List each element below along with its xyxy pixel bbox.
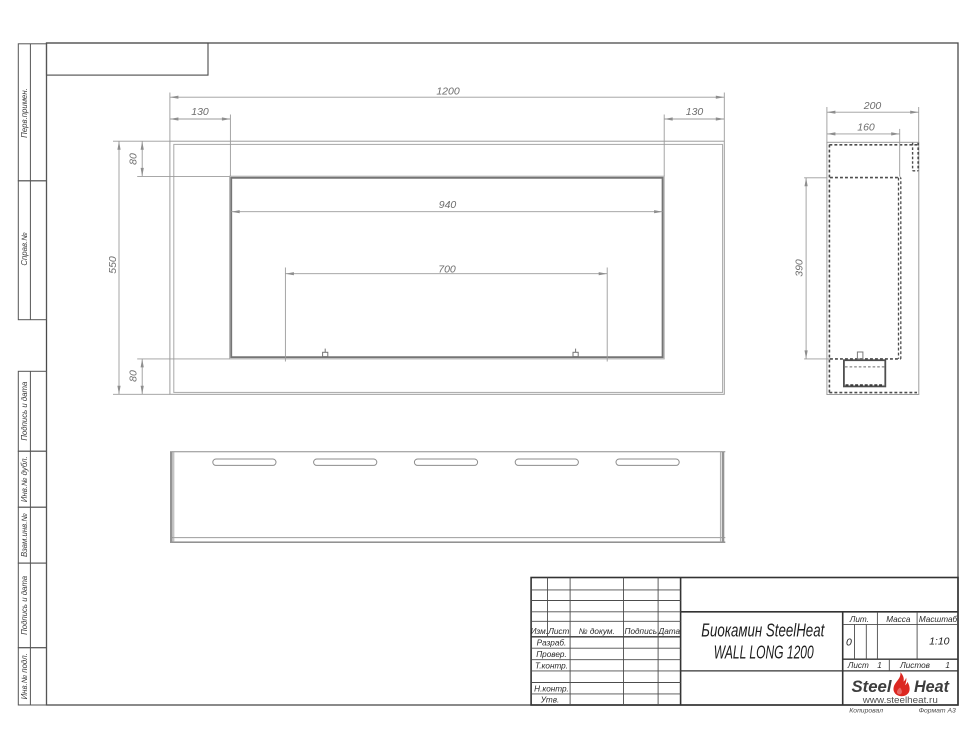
svg-text:130: 130 — [191, 106, 209, 118]
svg-text:www.steelheat.ru: www.steelheat.ru — [862, 695, 938, 706]
svg-text:№ докум.: № докум. — [579, 627, 615, 636]
svg-text:700: 700 — [438, 263, 456, 275]
svg-text:80: 80 — [127, 153, 139, 165]
svg-text:Масса: Масса — [886, 615, 911, 624]
svg-text:Инв.№ дубл.: Инв.№ дубл. — [20, 456, 29, 502]
svg-text:Справ.№: Справ.№ — [20, 232, 29, 265]
svg-text:200: 200 — [863, 100, 882, 112]
svg-text:Т.контр.: Т.контр. — [535, 662, 568, 671]
svg-text:550: 550 — [107, 256, 119, 274]
svg-text:Провер.: Провер. — [536, 650, 567, 659]
svg-text:Утв.: Утв. — [540, 696, 560, 705]
svg-text:1: 1 — [877, 661, 882, 670]
svg-text:Лист: Лист — [547, 627, 569, 636]
svg-text:Разраб.: Разраб. — [537, 639, 567, 648]
svg-text:80: 80 — [127, 370, 139, 382]
svg-text:Формат А3: Формат А3 — [919, 708, 956, 715]
svg-text:Масштаб: Масштаб — [919, 615, 958, 624]
svg-text:Взам.инв.№: Взам.инв.№ — [20, 513, 29, 557]
svg-text:Инв.№ подл.: Инв.№ подл. — [20, 653, 29, 699]
svg-text:WALL LONG 1200: WALL LONG 1200 — [714, 642, 814, 662]
svg-text:390: 390 — [793, 259, 805, 277]
svg-text:1200: 1200 — [436, 86, 460, 98]
svg-text:160: 160 — [857, 121, 875, 133]
svg-text:1:10: 1:10 — [929, 636, 950, 648]
svg-text:Изм.: Изм. — [531, 627, 548, 636]
svg-text:Дата: Дата — [657, 627, 680, 636]
svg-text:Лист: Лист — [847, 661, 869, 670]
svg-text:Лит.: Лит. — [849, 615, 869, 624]
svg-text:Heat: Heat — [914, 677, 950, 696]
svg-text:Подпись: Подпись — [625, 627, 657, 636]
svg-text:Подпись и дата: Подпись и дата — [20, 575, 29, 635]
svg-text:Steel: Steel — [852, 677, 893, 696]
svg-text:Перв.примен.: Перв.примен. — [20, 88, 29, 138]
svg-text:Н.контр.: Н.контр. — [534, 684, 569, 693]
svg-text:1: 1 — [945, 661, 950, 670]
svg-text:Биокамин SteelHeat: Биокамин SteelHeat — [701, 621, 825, 641]
svg-text:130: 130 — [686, 106, 704, 118]
svg-text:Листов: Листов — [899, 661, 931, 670]
svg-text:940: 940 — [439, 199, 457, 211]
svg-text:Копировал: Копировал — [849, 708, 883, 715]
svg-text:Подпись и дата: Подпись и дата — [20, 381, 29, 441]
svg-text:0: 0 — [846, 636, 852, 648]
